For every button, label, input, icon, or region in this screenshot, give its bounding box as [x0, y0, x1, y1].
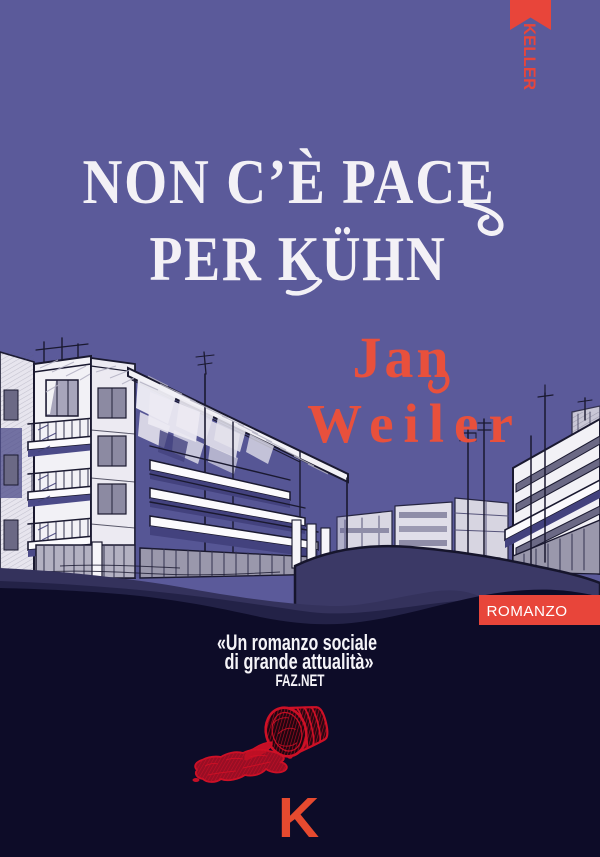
svg-text:Jan: Jan — [352, 325, 451, 390]
svg-text:NON C’È PACE: NON C’È PACE — [83, 146, 496, 217]
svg-text:Weiler: Weiler — [307, 393, 523, 454]
svg-text:KELLER: KELLER — [520, 23, 538, 90]
svg-text:PER KÜHN: PER KÜHN — [150, 223, 447, 294]
svg-text:FAZ.NET: FAZ.NET — [276, 671, 325, 690]
svg-text:K: K — [278, 786, 319, 850]
svg-text:ROMANZO: ROMANZO — [486, 603, 567, 620]
